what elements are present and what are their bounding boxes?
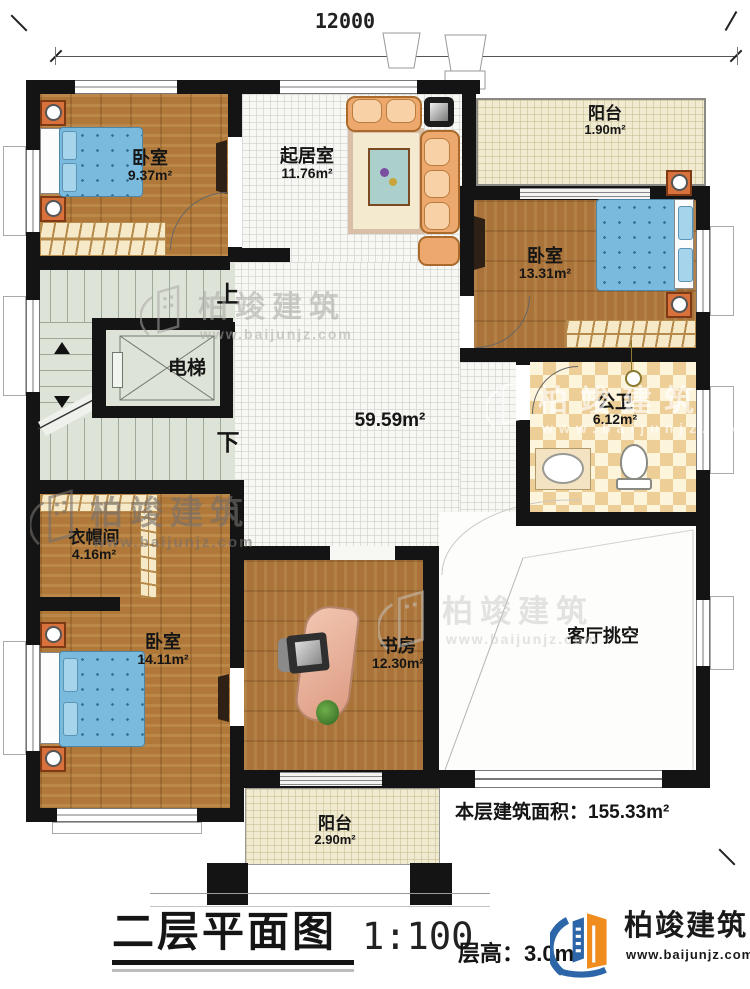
room-name: 卧室 xyxy=(500,246,590,266)
pendant-lamp-icon xyxy=(625,370,642,387)
corner-mark xyxy=(11,15,28,32)
lamp-icon xyxy=(45,626,62,643)
plant-icon xyxy=(316,700,339,725)
wall-segment xyxy=(230,480,244,810)
brand-name: 柏竣建筑 xyxy=(624,910,748,942)
door-opening xyxy=(460,296,474,348)
room-label: 卧室 13.31m² xyxy=(500,246,590,282)
door-leaf xyxy=(218,674,229,722)
room-name: 衣帽间 xyxy=(46,528,142,547)
room-label: 衣帽间 4.16m² xyxy=(46,528,142,563)
wall-segment xyxy=(26,597,120,611)
stairs-down-label: 下 xyxy=(206,430,250,456)
room-name: 卧室 xyxy=(118,632,208,652)
corner-mark xyxy=(725,11,738,31)
window xyxy=(696,390,710,470)
lamp-icon xyxy=(45,104,62,121)
monitor-screen xyxy=(295,640,322,666)
flower-decor xyxy=(389,178,397,186)
wall-segment xyxy=(516,512,710,526)
bed-headboard xyxy=(40,652,60,744)
dimension-end xyxy=(55,47,56,65)
hanger-rack xyxy=(40,494,158,512)
sofa-cushion xyxy=(424,202,450,230)
room-label: 卧室 14.11m² xyxy=(118,632,208,668)
room-area: 1.90m² xyxy=(560,123,650,138)
corner-mark xyxy=(719,849,736,866)
room-label: 公卫 6.12m² xyxy=(570,392,660,428)
window xyxy=(280,80,417,94)
room-area: 4.16m² xyxy=(46,547,142,563)
hall-area-label: 59.59m² xyxy=(340,410,440,431)
void-label: 客厅挑空 xyxy=(548,626,658,646)
bed xyxy=(596,199,678,291)
sheet-scale: 1:100 xyxy=(362,916,462,957)
door-opening xyxy=(330,546,395,560)
balcony-post xyxy=(207,863,248,905)
title-underline-2 xyxy=(112,969,354,972)
toilet-tank xyxy=(616,478,652,490)
hanger-rack xyxy=(140,512,157,598)
wall-segment xyxy=(460,348,710,362)
lamp-icon xyxy=(671,174,688,191)
room-label: 起居室 11.76m² xyxy=(262,146,352,182)
sofa-cushion xyxy=(386,99,416,123)
brand-logo-icon xyxy=(550,904,622,980)
room-name: 书房 xyxy=(350,636,446,656)
sofa-cushion xyxy=(352,99,382,123)
tv-speaker-cone xyxy=(430,103,448,121)
room-name: 公卫 xyxy=(570,392,660,412)
window xyxy=(475,770,662,788)
window-sill xyxy=(710,596,734,670)
floor-area-note: 本层建筑面积：155.33m² xyxy=(455,802,715,823)
sink-basin xyxy=(542,453,584,484)
wall-segment xyxy=(462,94,476,200)
brand-website: www.baijunjz.com xyxy=(626,948,750,963)
window-sill xyxy=(3,296,26,396)
nightstand xyxy=(40,196,66,222)
nightstand xyxy=(666,170,692,196)
room-name: 起居室 xyxy=(262,146,352,166)
wardrobe xyxy=(40,222,166,256)
room-area: 11.76m² xyxy=(262,166,352,182)
pillow xyxy=(678,248,693,282)
window xyxy=(75,80,177,94)
sofa-cushion xyxy=(424,138,450,166)
title-underline xyxy=(112,960,354,965)
bed-headboard xyxy=(40,128,60,194)
nightstand xyxy=(40,622,66,648)
door-opening xyxy=(230,668,244,726)
pillow xyxy=(63,658,78,692)
room-area: 12.30m² xyxy=(350,656,446,672)
toilet-bowl xyxy=(620,444,648,480)
room-label: 书房 12.30m² xyxy=(350,636,446,672)
room-area: 13.31m² xyxy=(500,266,590,282)
sliding-door xyxy=(280,772,382,786)
wall-segment xyxy=(662,770,710,788)
elevator-door xyxy=(112,352,123,388)
pillow xyxy=(62,163,77,192)
brand-logo: 柏竣建筑 www.baijunjz.com xyxy=(550,904,748,984)
pillow xyxy=(678,206,693,240)
door-opening xyxy=(228,137,242,247)
window-sill xyxy=(3,146,26,236)
room-area: 6.12m² xyxy=(570,412,660,428)
wall-segment xyxy=(26,480,230,494)
dimension-end xyxy=(737,47,738,65)
sheet-title: 二层平面图 xyxy=(112,908,352,955)
nightstand xyxy=(666,292,692,318)
window-sill xyxy=(710,226,734,316)
window-sill xyxy=(3,641,26,755)
window-sill xyxy=(710,386,734,474)
room-name: 卧室 xyxy=(110,148,190,168)
room-name: 阳台 xyxy=(290,814,380,833)
floor-plan-page: 12000 14200 xyxy=(0,0,750,989)
nightstand xyxy=(40,746,66,772)
railing-line xyxy=(150,893,490,894)
wall-segment xyxy=(228,248,290,262)
balcony-post xyxy=(410,863,452,905)
elevator-label: 电梯 xyxy=(152,358,222,379)
door-opening xyxy=(516,365,530,420)
sliding-door xyxy=(520,188,650,199)
wall-segment xyxy=(439,770,475,788)
room-name: 阳台 xyxy=(560,104,650,123)
sofa-chaise xyxy=(418,236,460,266)
room-label: 阳台 1.90m² xyxy=(560,104,650,138)
coffee-table xyxy=(368,148,410,206)
pillow xyxy=(62,131,77,160)
window xyxy=(696,230,710,312)
lamp-icon xyxy=(45,750,62,767)
railing-line xyxy=(150,906,490,907)
room-area: 2.90m² xyxy=(290,833,380,848)
window xyxy=(57,808,197,822)
lamp-icon xyxy=(671,296,688,313)
window xyxy=(26,645,40,751)
door-leaf xyxy=(216,140,227,194)
nightstand xyxy=(40,100,66,126)
sofa-cushion xyxy=(424,170,450,198)
flower-decor xyxy=(380,168,389,177)
room-label: 卧室 9.37m² xyxy=(110,148,190,184)
window xyxy=(696,600,710,666)
window-sill xyxy=(52,822,202,834)
stairs-up-label: 上 xyxy=(206,282,250,308)
window xyxy=(26,150,40,232)
door-leaf xyxy=(474,216,485,270)
room-area: 14.11m² xyxy=(118,652,208,668)
room-area: 9.37m² xyxy=(110,168,190,184)
lamp-icon xyxy=(45,200,62,217)
pillow xyxy=(63,702,78,736)
room-label: 阳台 2.90m² xyxy=(290,814,380,848)
pendant-cord xyxy=(631,340,632,372)
